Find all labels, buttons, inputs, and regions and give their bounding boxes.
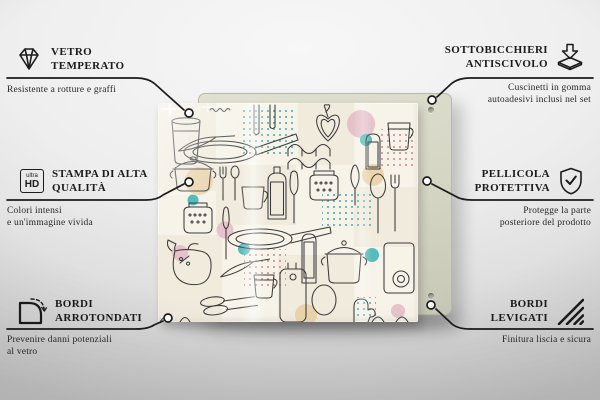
callout-subtitle-line: autoadesivi inclusi nel set xyxy=(488,94,591,106)
callout-title-line: PELLICOLA xyxy=(475,167,550,181)
callout-pellicola-protettiva: PELLICOLA PROTETTIVA xyxy=(475,167,584,195)
callout-title-line: LEVIGATI xyxy=(491,311,548,325)
callout-title-line: BORDI xyxy=(491,297,548,311)
callout-title-line: BORDI xyxy=(55,297,142,311)
callout-title-line: ARROTONDATI xyxy=(55,311,142,325)
callout-subtitle-line: Colori intensi xyxy=(7,205,93,217)
callout-subtitle: Prevenire danni potenziali al vetro xyxy=(7,334,112,358)
callout-title-line: ANTISCIVOLO xyxy=(445,57,548,71)
screw-hole-top xyxy=(428,107,434,113)
callout-title: VETRO TEMPERATO xyxy=(51,45,124,73)
callout-subtitle-line: Cuscinetti in gomma xyxy=(488,82,591,94)
callout-sottobicchieri-antiscivolo: SOTTOBICCHIERI ANTISCIVOLO xyxy=(445,43,584,71)
callout-subtitle-line: posteriore del prodotto xyxy=(500,217,591,229)
glass-panel-product xyxy=(158,103,418,322)
callout-title: PELLICOLA PROTETTIVA xyxy=(475,167,550,195)
callout-subtitle: Resistente a rotture e graffi xyxy=(7,84,116,96)
callout-title-line: SOTTOBICCHIERI xyxy=(445,43,548,57)
callout-subtitle-line: Protegge la parte xyxy=(500,205,591,217)
callout-vetro-temperato: VETRO TEMPERATO xyxy=(15,45,124,73)
callout-title: BORDI ARROTONDATI xyxy=(55,297,142,325)
callout-title-line: VETRO xyxy=(51,45,124,59)
callout-subtitle-line: al vetro xyxy=(7,346,112,358)
callout-subtitle-line: Finitura liscia e sicura xyxy=(502,334,591,346)
product-infographic: VETRO TEMPERATO Resistente a rotture e g… xyxy=(0,0,600,400)
callout-subtitle: Protegge la parte posteriore del prodott… xyxy=(500,205,591,229)
screw-hole-bottom xyxy=(428,293,434,299)
rounded-corner-icon xyxy=(15,297,47,325)
callout-title-line: STAMPA DI ALTA xyxy=(52,167,148,181)
callout-bordi-levigati: BORDI LEVIGATI xyxy=(491,297,584,325)
callout-title: STAMPA DI ALTA QUALITÀ xyxy=(52,167,148,195)
red-dot-patch xyxy=(380,129,416,167)
glass-reflection-corner xyxy=(158,103,306,195)
ultra-hd-icon: ultra HD xyxy=(20,169,44,193)
anti-slip-pad-icon xyxy=(556,43,584,71)
callout-subtitle-line: Resistente a rotture e graffi xyxy=(7,84,116,96)
diamond-icon xyxy=(15,47,43,71)
callout-title: BORDI LEVIGATI xyxy=(491,297,548,325)
callout-subtitle: Colori intensi e un'immagine vivida xyxy=(7,205,93,229)
shield-check-icon xyxy=(558,167,584,195)
callout-subtitle: Finitura liscia e sicura xyxy=(502,334,591,346)
glass-reflection-band xyxy=(354,103,372,322)
ultra-hd-icon-bottom-text: HD xyxy=(25,180,39,190)
callout-bordi-arrotondati: BORDI ARROTONDATI xyxy=(15,297,142,325)
callout-subtitle-line: Prevenire danni potenziali xyxy=(7,334,112,346)
callout-title: SOTTOBICCHIERI ANTISCIVOLO xyxy=(445,43,548,71)
callout-subtitle: Cuscinetti in gomma autoadesivi inclusi … xyxy=(488,82,591,106)
callout-stampa-di-alta-qualita: ultra HD STAMPA DI ALTA QUALITÀ xyxy=(20,167,148,195)
callout-subtitle-line: e un'immagine vivida xyxy=(7,217,93,229)
callout-title-line: TEMPERATO xyxy=(51,59,124,73)
callout-title-line: PROTETTIVA xyxy=(475,181,550,195)
callout-title-line: QUALITÀ xyxy=(52,181,148,195)
glass-reflection-band xyxy=(240,103,266,322)
polished-edge-icon xyxy=(556,297,584,325)
